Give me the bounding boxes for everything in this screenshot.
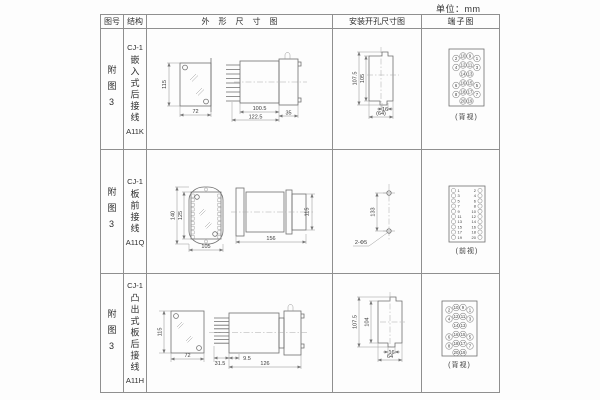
- terminal-number: 6: [455, 83, 458, 88]
- terminal-pin: [451, 214, 455, 218]
- view-caption: (背视): [448, 360, 471, 369]
- header-terminal-diagram: 端子图: [422, 15, 499, 28]
- terminal-number: 18: [454, 341, 459, 346]
- terminal-drawing-cell: 2109141211314136161558181772019 (背视): [422, 274, 499, 392]
- terminal-number: 3: [469, 317, 472, 322]
- header-fig-no: 图号: [101, 15, 124, 28]
- terminal-grid-back: 2109141211314136161558181772019: [446, 304, 474, 356]
- terminal-number: 9: [469, 54, 472, 59]
- fig-no-label: 附图3: [106, 187, 119, 236]
- terminal-pin: [478, 214, 482, 218]
- dim-label: 72: [184, 353, 190, 359]
- outline-drawing-cell: 115 72 100.5: [147, 29, 333, 149]
- view-caption: (背视): [455, 112, 478, 121]
- terminal-pin: [478, 204, 482, 208]
- model-label: CJ-1: [127, 43, 143, 52]
- terminal-pin: [451, 199, 455, 203]
- terminal-pin: [451, 204, 455, 208]
- terminal-block-outline: [449, 186, 485, 242]
- dim-label: 64: [387, 354, 393, 360]
- table-row-a11h: 附图3 CJ-1 凸出式板后接线 A11H: [101, 274, 499, 392]
- front-view: [171, 311, 204, 353]
- dim-label: 125: [178, 211, 184, 220]
- cutout-dims: 107.5 105 16 (64): [353, 52, 394, 119]
- terminal-pin: [478, 225, 482, 229]
- terminal-number: 10: [461, 54, 466, 59]
- terminal-number: 5: [476, 83, 479, 88]
- dim-label: 126: [260, 361, 269, 367]
- outline-drawing-a11k: 115 72 100.5: [147, 29, 332, 149]
- terminal-number: 13: [468, 72, 473, 77]
- outline-drawing-cell: 115 72: [147, 274, 333, 392]
- terminal-pin: [478, 194, 482, 198]
- terminal-grid-front: 1357911131517192468101214161820: [451, 188, 482, 240]
- panel-cutout: [378, 292, 405, 352]
- drill-drawing-a11q: 133 2-Φ5: [333, 150, 421, 273]
- terminal-pin: [451, 209, 455, 213]
- terminal-number: 15: [468, 81, 473, 86]
- terminal-number: 17: [468, 90, 473, 95]
- dim-label: 115: [305, 208, 311, 217]
- terminal-number: 14: [461, 72, 466, 77]
- fig-no-label: 附图3: [106, 65, 119, 114]
- terminal-number: 11: [468, 63, 473, 68]
- terminal-number: 16: [461, 81, 466, 86]
- side-view: [226, 53, 307, 106]
- dim-label: 105: [201, 244, 210, 250]
- terminal-number: 7: [469, 344, 472, 349]
- header-mounting-dims: 安装开孔尺寸图: [333, 15, 422, 28]
- dim-label: 35: [285, 111, 291, 117]
- terminal-pin: [478, 199, 482, 203]
- panel-cutout: [367, 47, 399, 110]
- header-structure: 结构: [124, 15, 147, 28]
- terminal-pin: [451, 230, 455, 234]
- terminal-number: 4: [448, 317, 451, 322]
- drill-holes: [383, 184, 395, 240]
- dim-label: 133: [371, 207, 377, 216]
- cutout-drawing-a11h: 107.5 104 16 64: [333, 274, 421, 392]
- terminal-number: 19: [461, 350, 466, 355]
- scanned-spec-sheet: 单位：mm 图号 结构 外形尺寸图 安装开孔尺寸图 端子图 附图3 CJ-1 嵌…: [0, 0, 600, 400]
- terminal-number: 18: [461, 90, 466, 95]
- terminal-number: 7: [476, 92, 479, 97]
- terminal-number: 9: [462, 305, 465, 310]
- terminal-number: 19: [468, 99, 473, 104]
- terminal-pin: [451, 188, 455, 192]
- terminal-number: 20: [472, 235, 477, 240]
- side-view-dims: 31.5 9.5 126: [214, 346, 301, 369]
- terminal-number: 6: [448, 335, 451, 340]
- structure-label: 凸出式板后接线: [129, 293, 142, 374]
- outline-drawing-cell: 140 125 105: [147, 150, 333, 273]
- terminal-pin: [478, 235, 482, 239]
- terminal-diagram-a11h: 2109141211314136161558181772019 (背视): [422, 274, 499, 392]
- terminal-diagram-a11q: 1357911131517192468101214161820 (前视): [422, 150, 499, 273]
- terminal-number: 16: [454, 332, 459, 337]
- side-view-dims: 115 156: [236, 194, 315, 244]
- dim-label: 107.5: [353, 72, 359, 86]
- table-header-row: 图号 结构 外形尺寸图 安装开孔尺寸图 端子图: [101, 15, 499, 29]
- hole-callout-label: 2-Φ5: [355, 240, 367, 246]
- cutout-drawing-a11k: 107.5 105 16 (64): [333, 29, 421, 149]
- terminal-pin: [451, 220, 455, 224]
- dim-label: 72: [192, 109, 198, 115]
- code-label: A11Q: [126, 238, 145, 247]
- terminal-number: 8: [448, 344, 451, 349]
- fig-no-cell: 附图3: [101, 150, 124, 273]
- terminal-number: 4: [455, 65, 458, 70]
- terminal-diagram-a11k: 2109141211314136161558181772019 (背视): [422, 29, 499, 149]
- terminal-number: 2: [448, 308, 451, 313]
- cutout-dims: 107.5 104 16 64: [353, 297, 403, 362]
- terminal-number: 12: [461, 63, 466, 68]
- terminal-number: 17: [461, 341, 466, 346]
- dim-label: 107.5: [353, 315, 359, 329]
- terminal-number: 2: [455, 56, 458, 61]
- terminal-number: 1: [476, 56, 479, 61]
- terminal-number: 19: [458, 235, 463, 240]
- outline-drawing-a11h: 115 72: [147, 274, 332, 392]
- front-view: [180, 58, 211, 112]
- model-label: CJ-1: [127, 281, 143, 290]
- dim-label: 9.5: [243, 356, 251, 362]
- fig-no-label: 附图3: [106, 309, 119, 358]
- front-view-dims: 115 72: [158, 311, 205, 362]
- code-label: A11H: [126, 376, 144, 385]
- terminal-number: 12: [454, 314, 459, 319]
- structure-label: 板前接线: [129, 189, 142, 235]
- outline-drawing-a11q: 140 125 105: [147, 150, 332, 273]
- terminal-number: 20: [454, 350, 459, 355]
- structure-label: 嵌入式后接线: [129, 55, 142, 124]
- terminal-number: 13: [461, 323, 466, 328]
- terminal-number: 14: [454, 323, 459, 328]
- terminal-grid-back: 2109141211314136161558181772019: [453, 53, 481, 105]
- drill-dims: 133 2-Φ5: [353, 193, 387, 246]
- terminal-number: 5: [469, 335, 472, 340]
- terminal-pin: [478, 188, 482, 192]
- terminal-pin: [478, 209, 482, 213]
- header-outline-dims: 外形尺寸图: [147, 15, 333, 28]
- table-row-a11q: 附图3 CJ-1 板前接线 A11Q: [101, 150, 499, 274]
- side-view: [231, 188, 313, 236]
- terminal-pin: [451, 194, 455, 198]
- mounting-drawing-cell: 107.5 104 16 64: [333, 274, 422, 392]
- dim-label: 100.5: [253, 106, 267, 112]
- terminal-pin: [478, 220, 482, 224]
- terminal-number: 1: [469, 308, 472, 313]
- dim-label: (64): [376, 111, 386, 117]
- dim-label: 104: [365, 317, 371, 326]
- terminal-number: 8: [455, 92, 458, 97]
- terminal-number: 20: [461, 99, 466, 104]
- view-caption: (前视): [456, 246, 479, 255]
- side-view: [209, 305, 309, 356]
- terminal-pin: [478, 230, 482, 234]
- dim-label: 31.5: [215, 361, 226, 367]
- terminal-number: 15: [461, 332, 466, 337]
- dim-label: 140: [171, 211, 177, 220]
- model-label: CJ-1: [127, 177, 143, 186]
- dim-label: 115: [162, 80, 168, 89]
- terminal-number: 3: [476, 65, 479, 70]
- dim-label: 115: [158, 328, 164, 337]
- table-row-a11k: 附图3 CJ-1 嵌入式后接线 A11K: [101, 29, 499, 150]
- fig-no-cell: 附图3: [101, 29, 124, 149]
- dim-label: 156: [266, 236, 275, 242]
- terminal-drawing-cell: 2109141211314136161558181772019 (背视): [422, 29, 499, 149]
- fig-no-cell: 附图3: [101, 274, 124, 392]
- dim-label: 122.5: [249, 115, 263, 121]
- structure-cell: CJ-1 凸出式板后接线 A11H: [124, 274, 147, 392]
- code-label: A11K: [126, 127, 144, 136]
- front-view: [189, 187, 223, 244]
- terminal-drawing-cell: 1357911131517192468101214161820 (前视): [422, 150, 499, 273]
- structure-cell: CJ-1 板前接线 A11Q: [124, 150, 147, 273]
- mounting-drawing-cell: 133 2-Φ5: [333, 150, 422, 273]
- mounting-drawing-cell: 107.5 105 16 (64): [333, 29, 422, 149]
- terminal-pin: [451, 225, 455, 229]
- dim-label: 105: [360, 74, 366, 83]
- spec-table: 图号 结构 外形尺寸图 安装开孔尺寸图 端子图 附图3 CJ-1 嵌入式后接线 …: [100, 14, 500, 393]
- terminal-number: 11: [461, 314, 466, 319]
- terminal-number: 10: [454, 305, 459, 310]
- terminal-pin: [451, 235, 455, 239]
- structure-cell: CJ-1 嵌入式后接线 A11K: [124, 29, 147, 149]
